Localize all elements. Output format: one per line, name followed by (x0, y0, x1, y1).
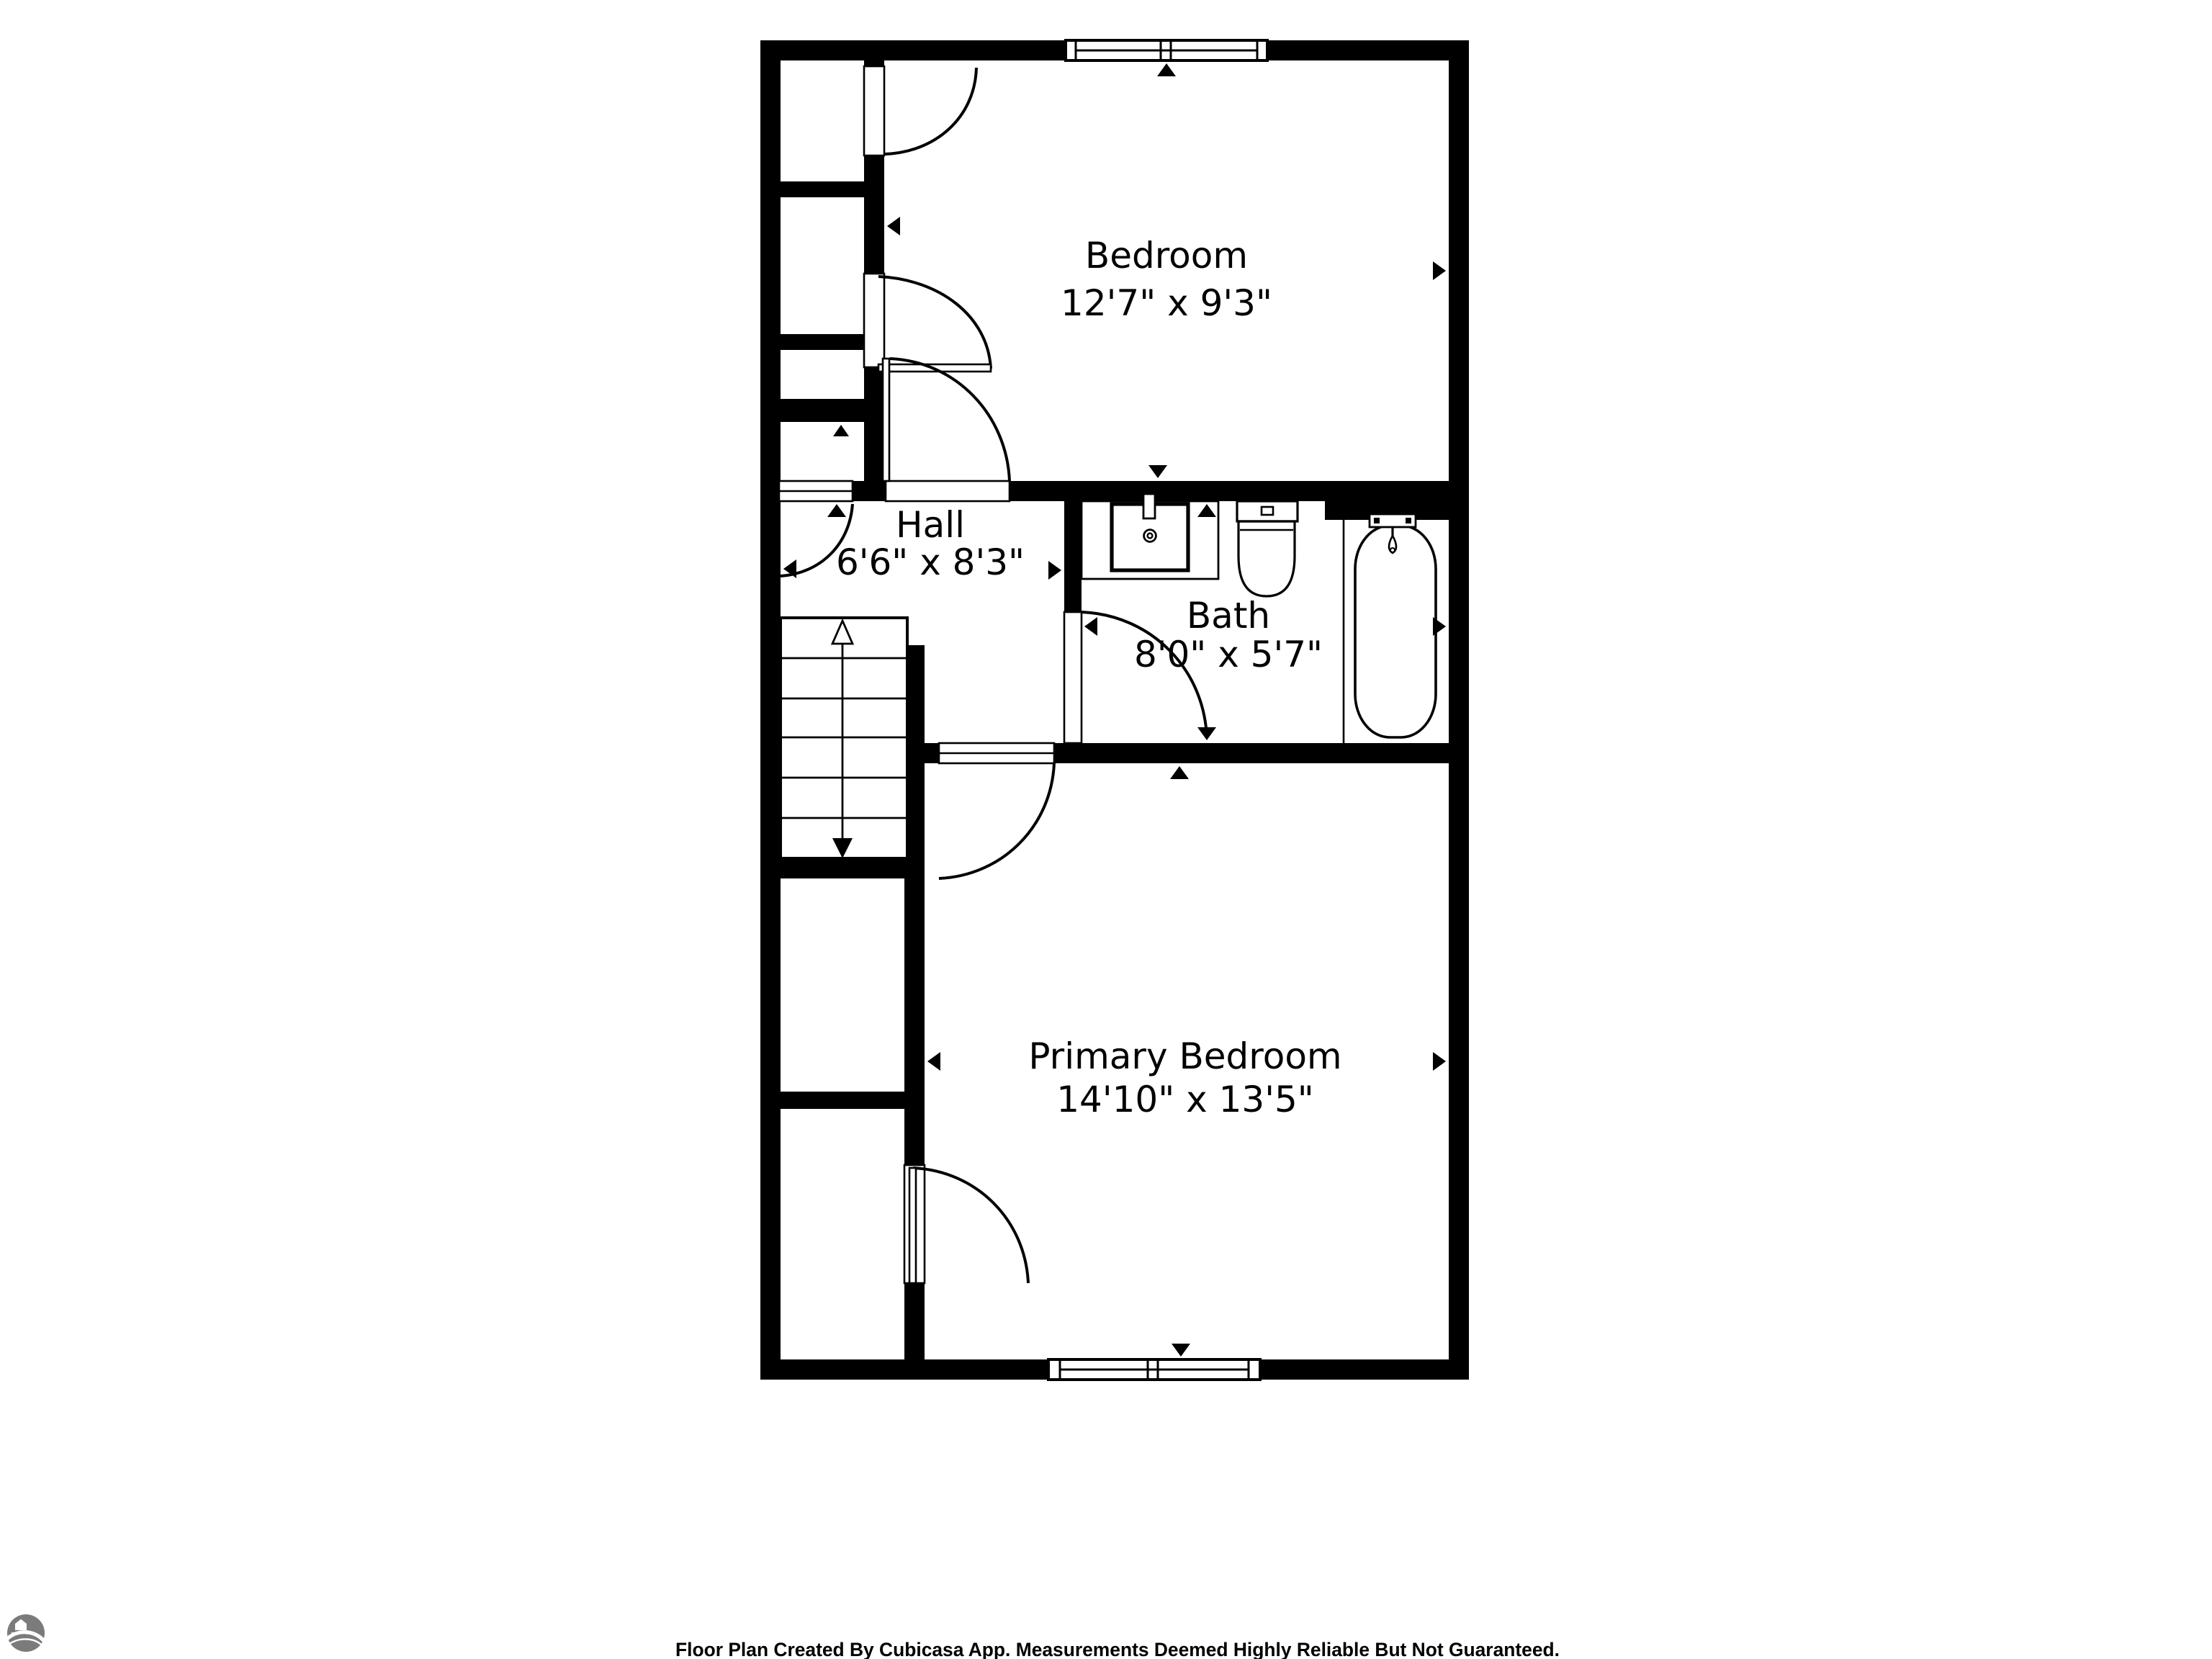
arrow-bedroom-left-icon (887, 217, 900, 235)
floor-plan-canvas: Bedroom 12'7" x 9'3" Hall 6'6" x 8'3" Ba… (0, 0, 2212, 1659)
door-swing-closet-e-icon (913, 1168, 1028, 1283)
door-frame-closet-a (864, 66, 884, 156)
room-label-primary: Primary Bedroom 14'10" x 13'5" (1028, 1035, 1341, 1120)
arrow-primary-top-icon (1170, 766, 1189, 779)
arrow-bedroom-right-icon (1433, 261, 1446, 280)
bath-dims: 8'0" x 5'7" (1134, 634, 1323, 675)
cubicasa-logo-icon (7, 1614, 45, 1652)
door-swing-bedroom-icon (890, 359, 1010, 481)
floor-plan-page: { "rooms": { "bedroom": { "name": "Bedro… (0, 0, 2212, 1659)
hall-dims: 6'6" x 8'3" (836, 541, 1025, 583)
stairs (781, 618, 907, 858)
door-leaf-closet-e (909, 1168, 916, 1283)
arrow-primary-left-icon (927, 1052, 940, 1071)
toilet-bowl (1238, 521, 1295, 596)
room-label-bedroom: Bedroom 12'7" x 9'3" (1061, 235, 1272, 324)
bedroom-dims: 12'7" x 9'3" (1061, 282, 1272, 324)
window-top (1066, 40, 1267, 60)
arrow-bath-left-icon (1084, 617, 1097, 636)
arrow-bedroom-bottom-icon (1148, 465, 1167, 478)
arrow-hall-top-icon (827, 504, 846, 517)
window-bottom (1048, 1359, 1260, 1380)
arrow-bedroom-top-icon (1157, 63, 1176, 76)
toilet-flush-button (1262, 507, 1273, 515)
bedroom-name: Bedroom (1085, 235, 1248, 276)
primary-name: Primary Bedroom (1028, 1035, 1341, 1077)
door-frame-bath (1064, 612, 1082, 743)
hall-name: Hall (896, 504, 965, 546)
arrow-bath-top-icon (1197, 504, 1216, 517)
sink-faucet (1143, 494, 1155, 518)
arrow-bath-right-icon (1433, 617, 1446, 636)
arrow-bath-bottom-icon (1197, 727, 1216, 740)
bathtub-icon (1344, 514, 1436, 743)
room-label-bath: Bath 8'0" x 5'7" (1134, 595, 1323, 675)
door-leaf-bedroom (883, 359, 889, 481)
arrow-hall-right-icon (1048, 561, 1061, 580)
door-swing-closet-a-icon (884, 68, 976, 154)
toilet-icon (1237, 501, 1298, 596)
room-label-hall: Hall 6'6" x 8'3" (836, 504, 1025, 583)
door-swing-closet-b-icon (878, 276, 991, 369)
door-swing-primary-icon (939, 763, 1054, 878)
primary-dims: 14'10" x 13'5" (1056, 1079, 1314, 1120)
door-frame-bedroom (886, 481, 1010, 501)
footer-disclaimer: Floor Plan Created By Cubicasa App. Meas… (675, 1639, 1560, 1659)
arrow-primary-right-icon (1433, 1052, 1446, 1071)
bath-name: Bath (1187, 595, 1270, 637)
arrow-closet-icon (833, 425, 849, 436)
tub-body (1355, 526, 1436, 737)
toilet-tank (1237, 501, 1298, 521)
door-frame-closet-b (864, 274, 884, 367)
arrow-primary-bottom-icon (1172, 1344, 1190, 1357)
sink-icon (1082, 494, 1218, 579)
